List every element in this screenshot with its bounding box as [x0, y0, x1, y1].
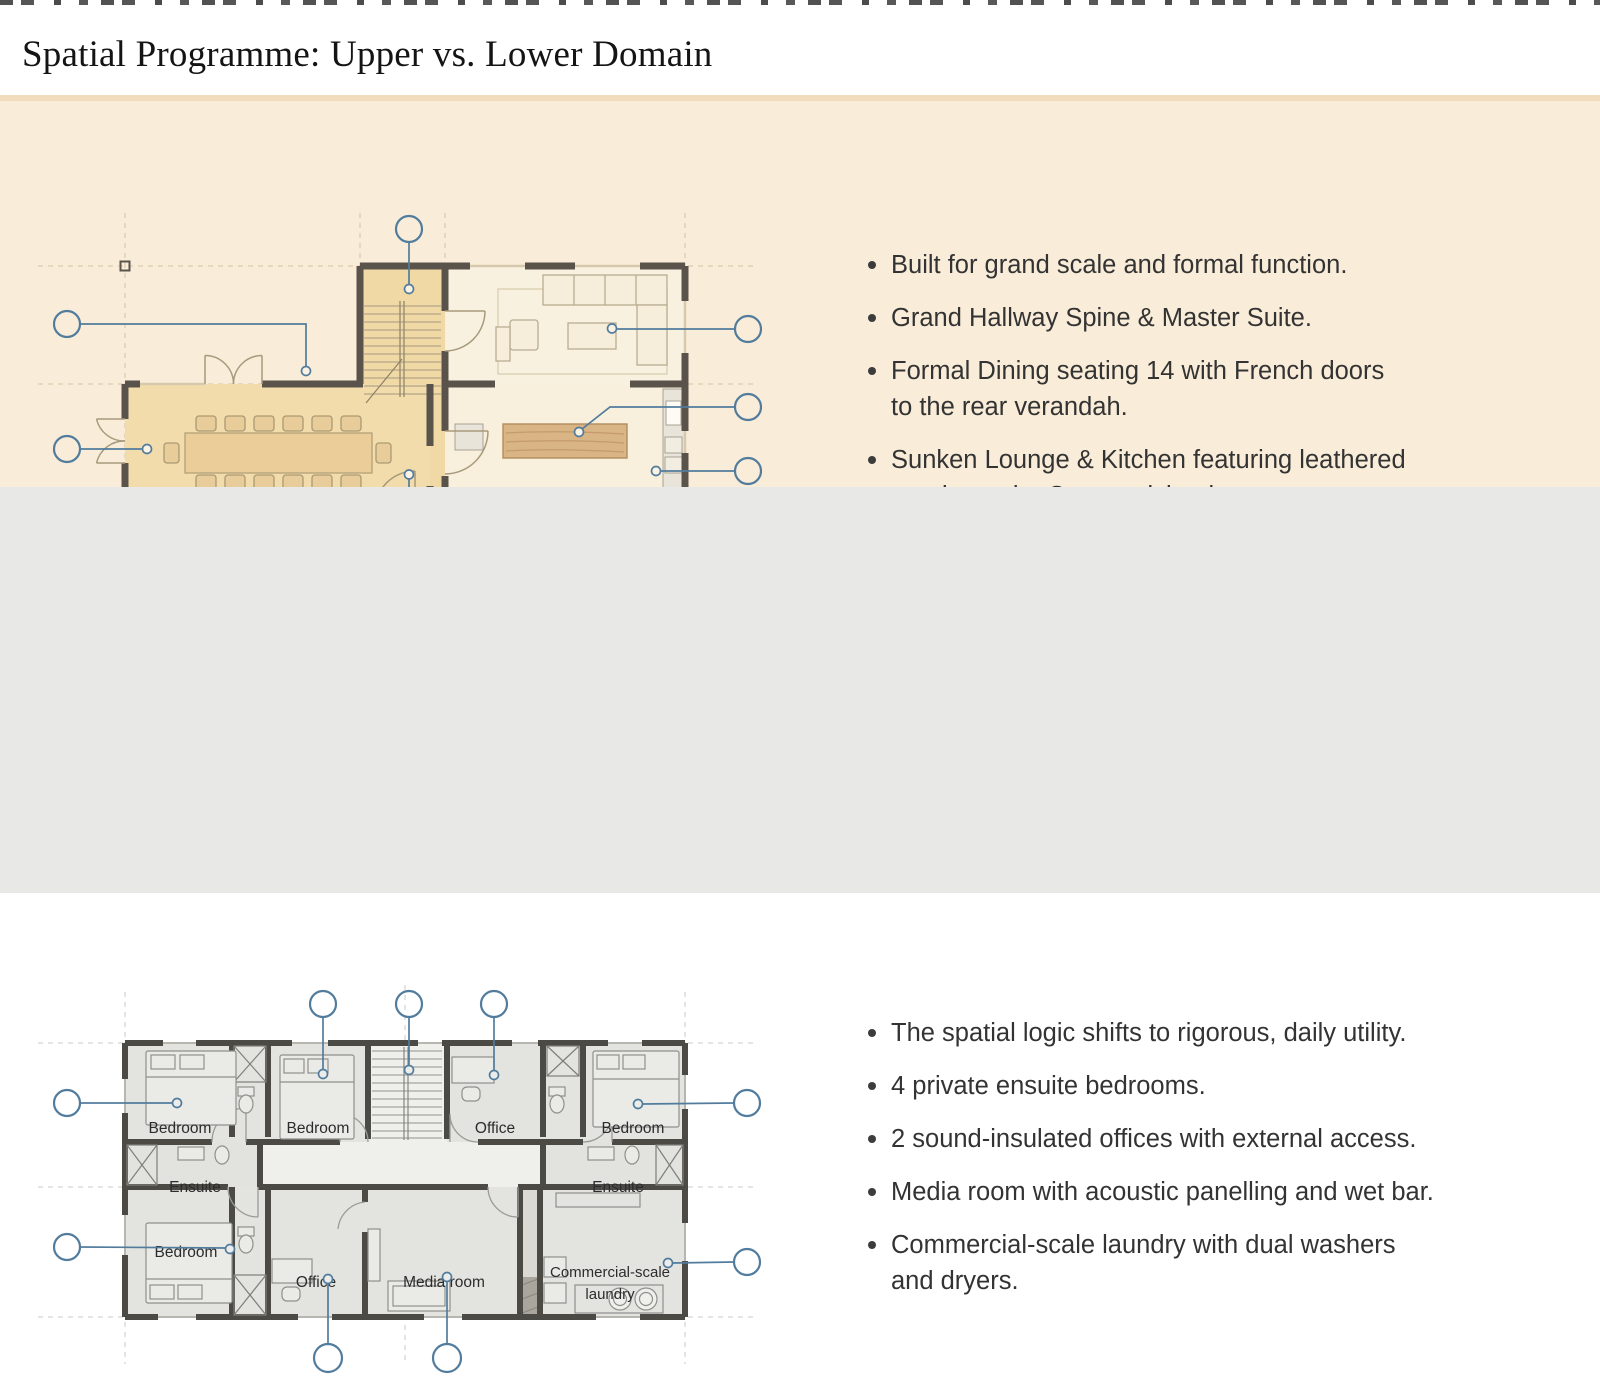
bullet-item: The spatial logic shifts to rigorous, da…: [868, 1015, 1568, 1051]
cypress-island: [503, 424, 627, 458]
tv-cabinet-icon: [368, 1229, 380, 1281]
lower-floor-plan: Bedroom Bedroom Office Bedroom Ensuite E…: [0, 974, 810, 1380]
bullet-text: Formal Dining seating 14 with French doo…: [891, 353, 1384, 425]
callout-circle: [54, 1234, 80, 1260]
bullet-text: Built for grand scale and formal functio…: [891, 247, 1347, 283]
bullet-dot-icon: [868, 1135, 876, 1143]
bullet-text: Grand Hallway Spine & Master Suite.: [891, 300, 1312, 336]
bed-icon: [593, 1051, 679, 1127]
washer-icon: [635, 1288, 657, 1310]
dining-table: [185, 433, 372, 473]
bullet-item: 4 private ensuite bedrooms.: [868, 1068, 1568, 1104]
header: Spatial Programme: Upper vs. Lower Domai…: [0, 5, 1600, 95]
sink-icon: [666, 401, 681, 425]
room-label-bedroom-3: Bedroom: [602, 1120, 665, 1137]
callout-circle: [735, 394, 761, 420]
bullet-text: Commercial-scale laundry with dual washe…: [891, 1227, 1396, 1299]
room-label-ensuite-1: Ensuite: [169, 1179, 221, 1196]
room-label-bedroom-4: Bedroom: [155, 1244, 218, 1261]
page-title: Spatial Programme: Upper vs. Lower Domai…: [22, 32, 713, 78]
bullet-text: Media room with acoustic panelling and w…: [891, 1174, 1434, 1210]
bullet-dot-icon: [868, 456, 876, 464]
callout-circle: [54, 311, 80, 337]
bullet-dot-icon: [868, 314, 876, 322]
page: Spatial Programme: Upper vs. Lower Domai…: [0, 0, 1600, 893]
bullet-dot-icon: [868, 1188, 876, 1196]
bullet-dot-icon: [868, 1241, 876, 1249]
room-label-bedroom-2: Bedroom: [287, 1120, 350, 1137]
callout-circle: [396, 216, 422, 242]
lower-domain-section: Bedroom Bedroom Office Bedroom Ensuite E…: [0, 487, 1600, 893]
bullet-item: 2 sound-insulated offices with external …: [868, 1121, 1568, 1157]
toilet-icon: [549, 1087, 565, 1113]
bullet-item: Built for grand scale and formal functio…: [868, 247, 1568, 283]
room-label-laundry-line2: laundry: [585, 1286, 635, 1303]
lower-bullet-list: The spatial logic shifts to rigorous, da…: [868, 1015, 1568, 1316]
callout-circle: [735, 316, 761, 342]
room-label-bedroom-1: Bedroom: [149, 1120, 212, 1137]
toilet-icon: [238, 1227, 254, 1253]
room-label-laundry-line1: Commercial-scale: [550, 1264, 670, 1281]
counter-block: [455, 424, 483, 450]
bullet-item: Formal Dining seating 14 with French doo…: [868, 353, 1568, 425]
room-label-ensuite-2: Ensuite: [592, 1179, 644, 1196]
bullet-text: The spatial logic shifts to rigorous, da…: [891, 1015, 1406, 1051]
bullet-dot-icon: [868, 1029, 876, 1037]
callout-circle: [734, 1090, 760, 1116]
callout-circle: [54, 1090, 80, 1116]
callout-circle: [481, 991, 507, 1017]
bed-icon: [146, 1051, 236, 1125]
bed-icon: [146, 1223, 232, 1303]
bullet-text: 4 private ensuite bedrooms.: [891, 1068, 1206, 1104]
bullet-dot-icon: [868, 1082, 876, 1090]
bullet-text: 2 sound-insulated offices with external …: [891, 1121, 1416, 1157]
armchair-icon: [510, 320, 538, 350]
bullet-item: Grand Hallway Spine & Master Suite.: [868, 300, 1568, 336]
callout-circle: [396, 991, 422, 1017]
callout-circle: [735, 458, 761, 484]
toilet-icon: [238, 1087, 254, 1113]
bullet-item: Commercial-scale laundry with dual washe…: [868, 1227, 1568, 1299]
callout-circle: [314, 1344, 342, 1372]
callout-circle: [310, 991, 336, 1017]
room-label-office-1: Office: [475, 1120, 515, 1137]
callout-circle: [54, 436, 80, 462]
bullet-dot-icon: [868, 367, 876, 375]
sofa-return: [637, 305, 667, 365]
callout-circle: [433, 1344, 461, 1372]
upper-domain-section: Built for grand scale and formal functio…: [0, 101, 1600, 487]
bullet-dot-icon: [868, 261, 876, 269]
tv-cabinet-icon: [496, 327, 510, 361]
bullet-item: Media room with acoustic panelling and w…: [868, 1174, 1568, 1210]
callout-circle: [734, 1249, 760, 1275]
appliance-icon: [665, 437, 682, 453]
